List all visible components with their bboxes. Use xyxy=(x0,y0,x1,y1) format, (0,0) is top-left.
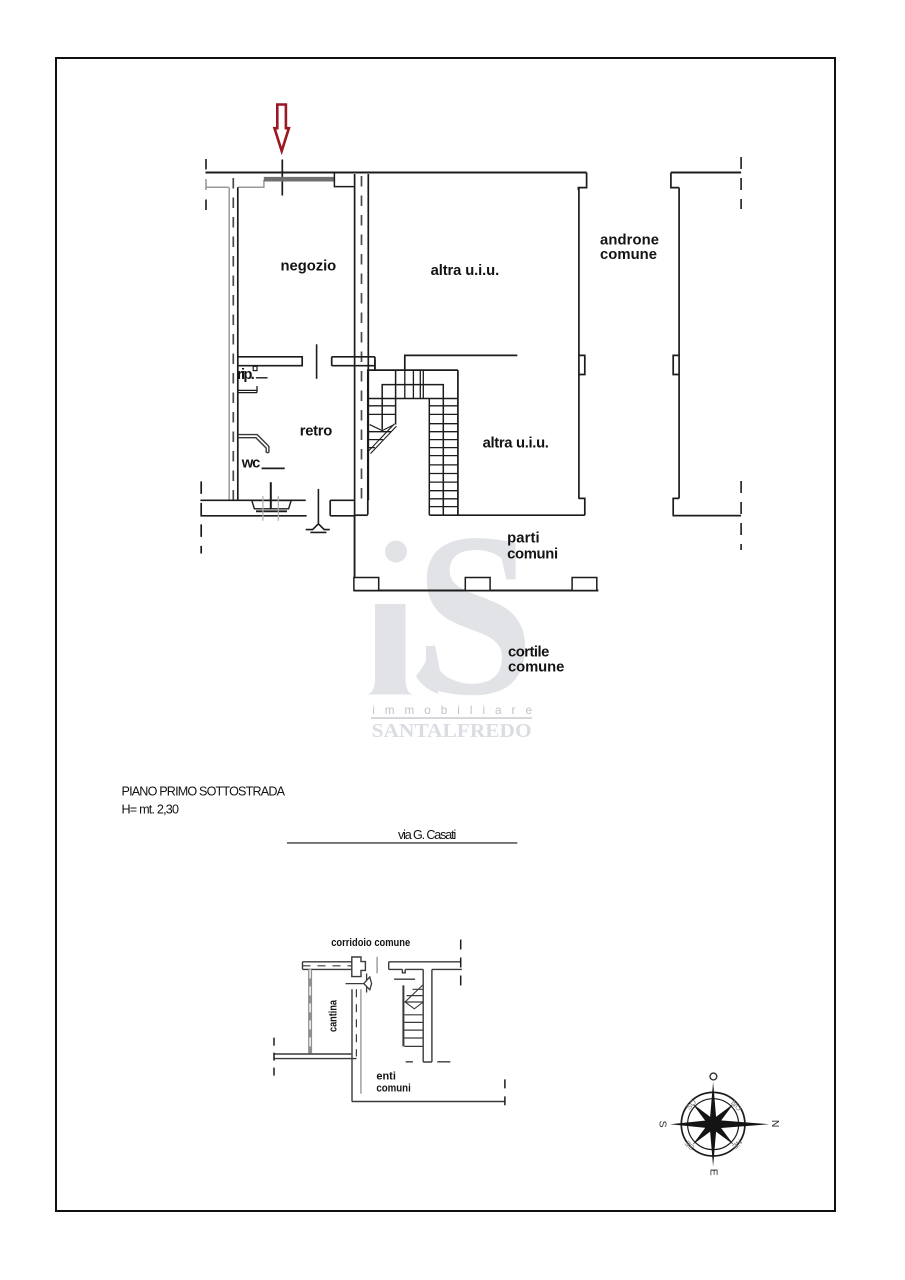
svg-text:comuni: comuni xyxy=(376,1083,410,1095)
svg-text:altra u.i.u.: altra u.i.u. xyxy=(431,263,500,279)
svg-text:retro: retro xyxy=(300,423,333,439)
svg-text:via G. Casati: via G. Casati xyxy=(398,828,456,842)
svg-text:N: N xyxy=(769,1120,780,1128)
svg-text:H= mt. 2,30: H= mt. 2,30 xyxy=(122,803,180,817)
svg-text:comune: comune xyxy=(600,247,657,263)
svg-text:parti: parti xyxy=(507,531,539,547)
svg-text:comuni: comuni xyxy=(507,547,558,563)
svg-text:altra u.i.u.: altra u.i.u. xyxy=(483,436,549,452)
svg-text:rip.: rip. xyxy=(237,367,255,383)
svg-text:SANTALFREDO: SANTALFREDO xyxy=(372,720,532,742)
svg-text:immobiliare: immobiliare xyxy=(372,704,542,717)
svg-text:comune: comune xyxy=(508,659,564,675)
svg-text:SO: SO xyxy=(684,1098,698,1112)
svg-text:wc: wc xyxy=(241,456,261,472)
svg-text:E: E xyxy=(708,1169,719,1176)
svg-text:enti: enti xyxy=(376,1071,396,1083)
svg-text:cantina: cantina xyxy=(328,999,340,1032)
svg-text:PIANO PRIMO SOTTOSTRADA: PIANO PRIMO SOTTOSTRADA xyxy=(122,784,286,798)
svg-text:negozio: negozio xyxy=(281,259,337,275)
svg-text:cortile: cortile xyxy=(508,645,549,661)
svg-text:corridoio comune: corridoio comune xyxy=(331,937,410,949)
svg-text:S: S xyxy=(657,1121,668,1128)
